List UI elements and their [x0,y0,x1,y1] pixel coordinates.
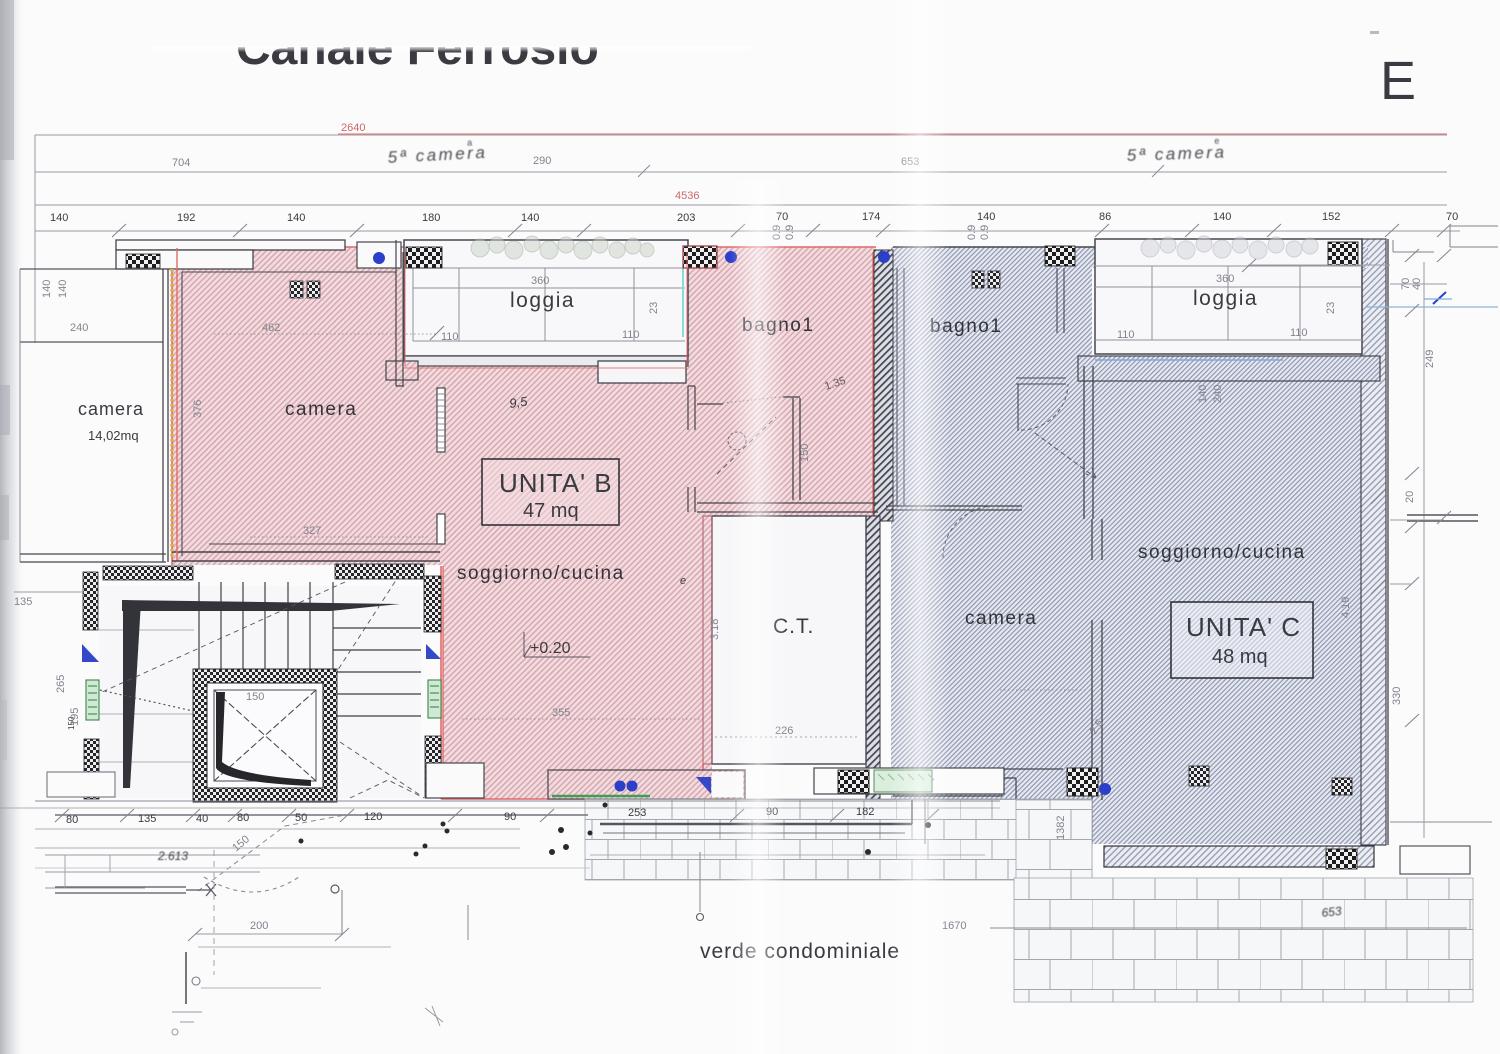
svg-text:150: 150 [246,691,264,703]
svg-text:80: 80 [237,812,249,824]
svg-text:110: 110 [1117,329,1135,341]
svg-text:355: 355 [552,707,570,719]
svg-text:704: 704 [172,157,190,169]
svg-text:376: 376 [192,400,204,418]
svg-text:a: a [467,138,473,148]
svg-text:327: 327 [303,525,321,537]
svg-text:23: 23 [1325,302,1337,314]
svg-text:loggia: loggia [1193,287,1258,310]
svg-text:135: 135 [14,596,32,608]
svg-text:+0.20: +0.20 [530,640,571,657]
svg-text:48 mq: 48 mq [1212,646,1268,668]
svg-text:70: 70 [1446,211,1458,223]
svg-text:4536: 4536 [675,190,699,202]
svg-text:290: 290 [533,155,551,167]
svg-text:360: 360 [1216,273,1234,285]
svg-text:e: e [680,575,686,587]
svg-text:47 mq: 47 mq [523,500,579,522]
svg-text:140: 140 [41,280,53,298]
svg-text:soggiorno/cucina: soggiorno/cucina [1138,542,1306,563]
svg-text:110: 110 [622,329,640,341]
svg-text:90: 90 [504,811,516,823]
svg-text:240: 240 [1212,385,1224,403]
svg-text:140: 140 [521,212,539,224]
svg-text:195: 195 [69,708,81,726]
svg-text:174: 174 [862,211,880,223]
svg-text:86: 86 [1099,211,1111,223]
svg-text:110: 110 [441,331,459,343]
svg-text:182: 182 [856,806,874,818]
svg-text:80: 80 [66,814,78,826]
svg-text:20: 20 [1404,491,1416,503]
svg-text:0.9: 0.9 [966,225,978,240]
svg-text:3.18: 3.18 [709,619,721,640]
svg-text:0.9: 0.9 [979,225,991,240]
svg-text:camera: camera [285,399,357,420]
svg-text:330: 330 [1391,687,1403,705]
svg-text:360: 360 [531,275,549,287]
svg-text:203: 203 [677,212,695,224]
svg-text:camera: camera [78,399,144,419]
svg-text:192: 192 [177,212,195,224]
svg-text:462: 462 [262,322,280,334]
svg-text:140: 140 [1213,211,1231,223]
svg-text:e: e [1214,136,1219,146]
svg-text:265: 265 [55,675,67,693]
svg-text:249: 249 [1424,350,1436,368]
svg-text:9,5: 9,5 [508,393,529,410]
svg-text:200: 200 [250,920,268,932]
svg-text:1382: 1382 [1055,816,1067,840]
svg-text:E: E [1380,51,1416,111]
svg-text:loggia: loggia [510,289,575,312]
svg-text:240: 240 [70,322,88,334]
svg-text:140: 140 [287,212,305,224]
svg-text:110: 110 [1290,327,1308,339]
svg-text:14,02mq: 14,02mq [88,428,139,443]
svg-text:4.19: 4.19 [1340,597,1352,618]
svg-text:135: 135 [138,813,156,825]
svg-text:253: 253 [628,807,646,819]
svg-text:140: 140 [1197,385,1209,403]
svg-text:2.613: 2.613 [157,849,188,863]
svg-text:140: 140 [57,280,69,298]
svg-text:soggiorno/cucina: soggiorno/cucina [457,563,625,584]
svg-text:UNITA' C: UNITA' C [1186,612,1301,642]
svg-text:140: 140 [50,212,68,224]
svg-text:23: 23 [648,302,660,314]
svg-text:120: 120 [364,811,382,823]
svg-text:180: 180 [422,212,440,224]
svg-text:653: 653 [1321,904,1343,920]
svg-text:140: 140 [977,211,995,223]
svg-text:UNITA' B: UNITA' B [499,468,613,498]
svg-text:camera: camera [965,608,1037,629]
svg-text:40: 40 [196,813,208,825]
svg-text:2640: 2640 [341,122,365,134]
svg-text:150: 150 [799,444,811,462]
svg-text:5ª camera: 5ª camera [1126,143,1226,165]
svg-text:152: 152 [1322,211,1340,223]
